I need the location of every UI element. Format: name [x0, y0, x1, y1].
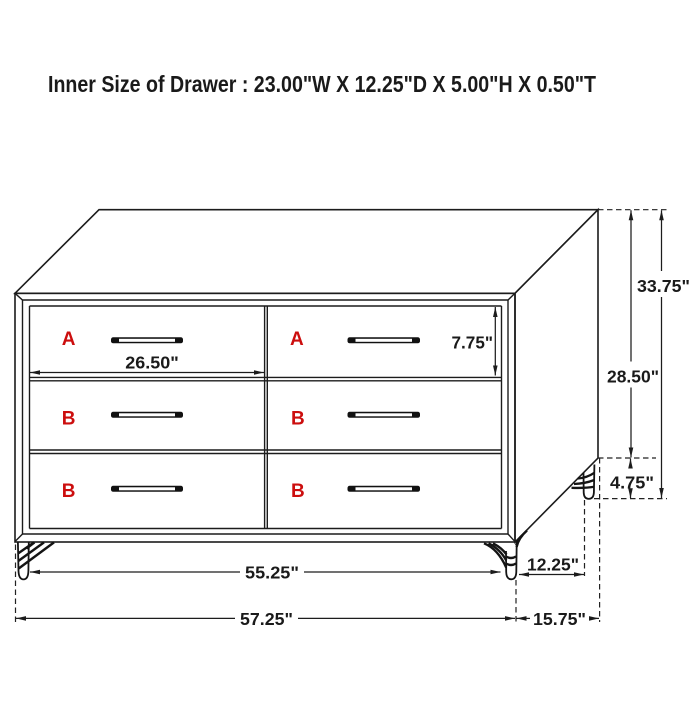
svg-text:B: B: [291, 409, 305, 430]
svg-text:4.75": 4.75": [610, 473, 654, 493]
svg-text:B: B: [62, 481, 76, 502]
svg-text:12.25": 12.25": [527, 554, 579, 574]
svg-text:26.50": 26.50": [125, 352, 179, 372]
svg-text:15.75": 15.75": [533, 609, 586, 629]
svg-text:28.50": 28.50": [607, 367, 659, 387]
svg-text:7.75": 7.75": [452, 333, 494, 353]
svg-text:57.25": 57.25": [240, 609, 293, 629]
svg-text:33.75": 33.75": [637, 276, 690, 296]
svg-text:Inner Size of Drawer : 23.00"W: Inner Size of Drawer : 23.00"W X 12.25"D…: [48, 71, 596, 97]
svg-text:A: A: [62, 329, 76, 350]
svg-text:A: A: [290, 329, 304, 350]
svg-text:B: B: [291, 481, 305, 502]
svg-text:B: B: [62, 409, 76, 430]
svg-text:55.25": 55.25": [245, 562, 299, 582]
